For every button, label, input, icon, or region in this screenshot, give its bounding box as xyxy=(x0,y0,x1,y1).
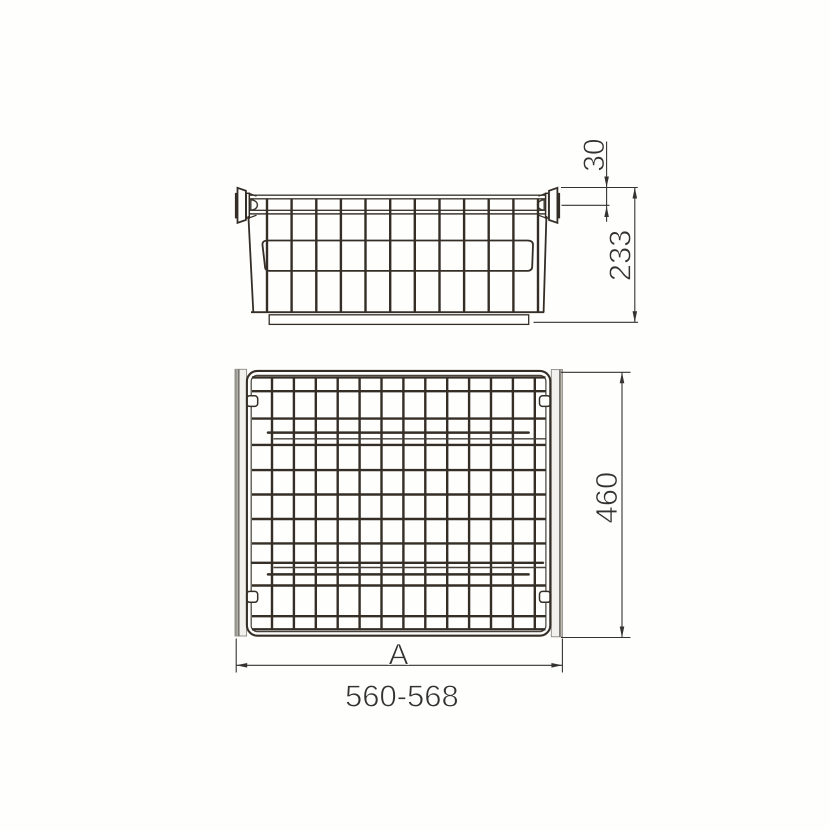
svg-text:233: 233 xyxy=(603,230,638,282)
svg-text:460: 460 xyxy=(589,472,624,524)
svg-text:560-568: 560-568 xyxy=(345,679,459,714)
svg-text:A: A xyxy=(389,639,409,672)
svg-text:30: 30 xyxy=(578,138,611,171)
